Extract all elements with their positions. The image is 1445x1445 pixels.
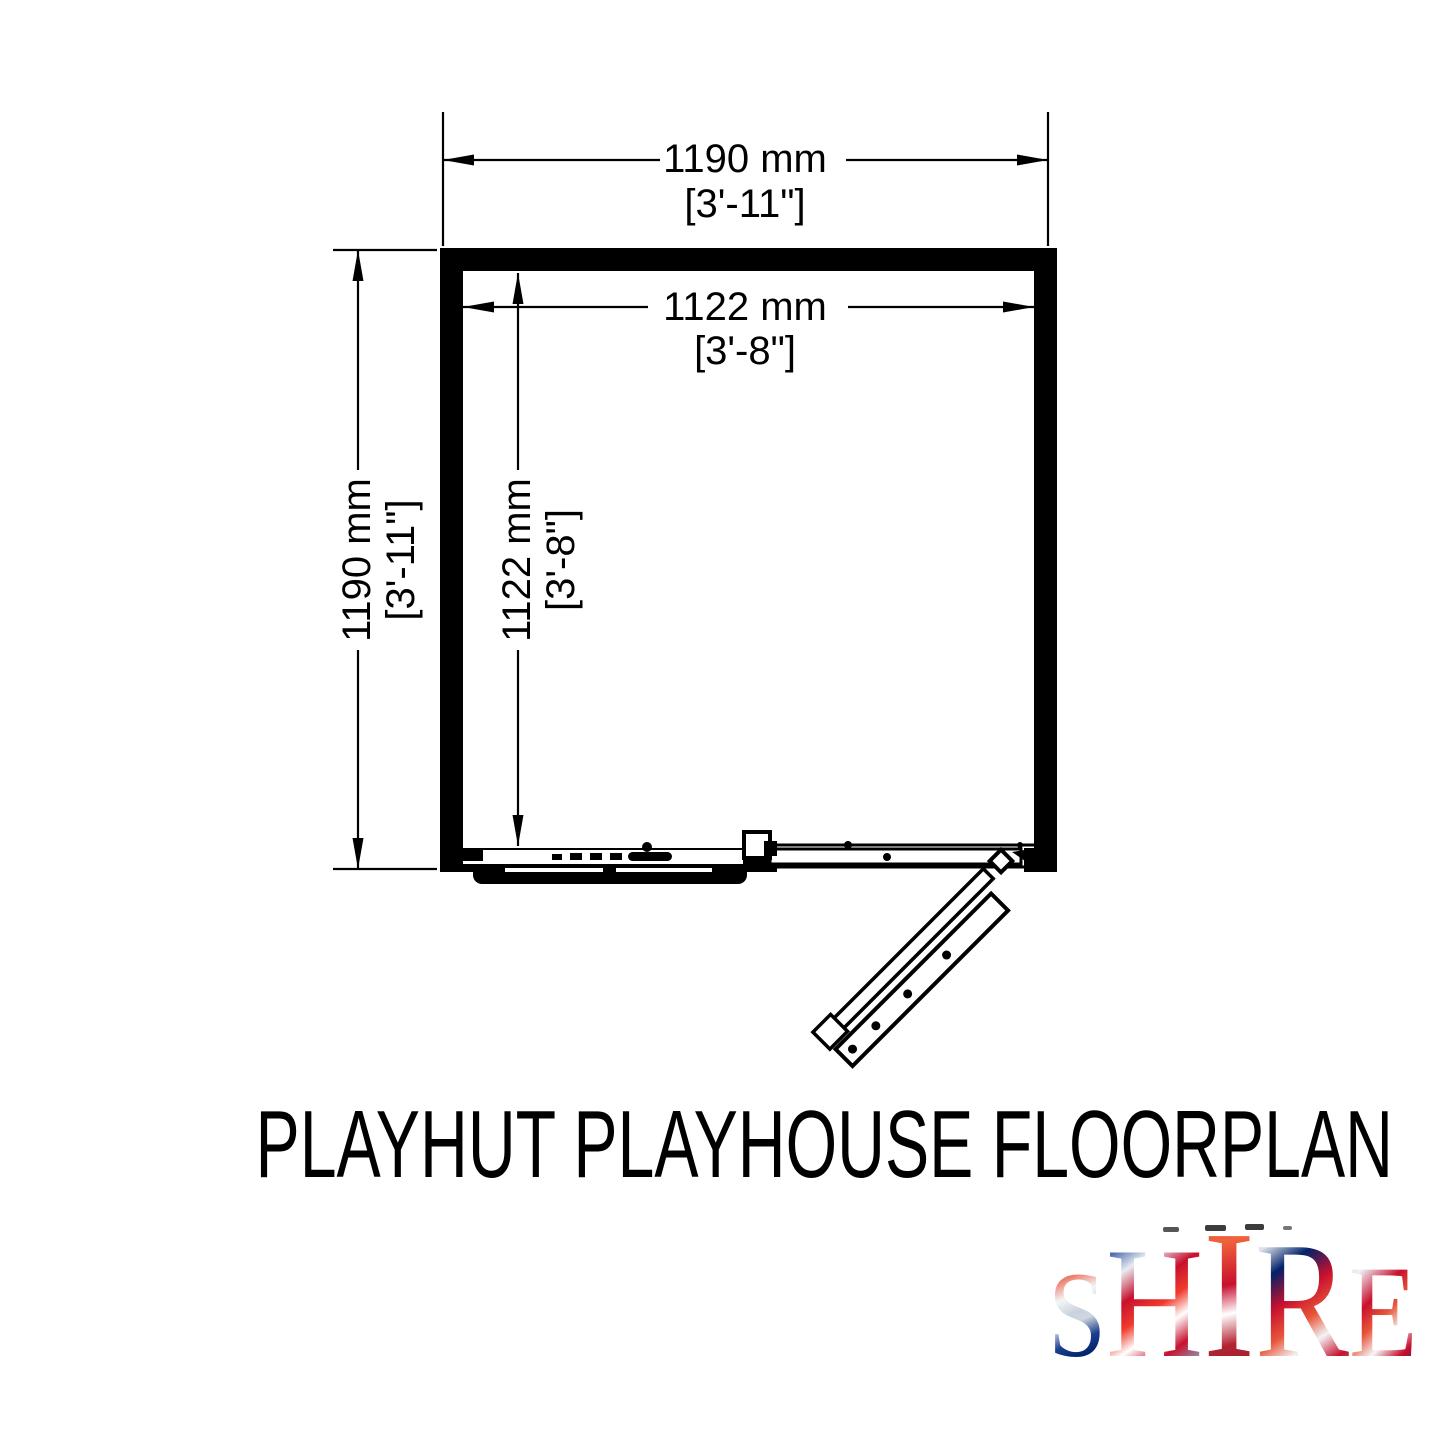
dim-inner-depth-imperial: [3'-8"] (539, 509, 583, 611)
logo-letter-s: S (1048, 1253, 1106, 1376)
dim-outer-depth-imperial: [3'-11"] (379, 499, 423, 620)
smudge-dash (1283, 1226, 1292, 1230)
floorplan-page: 1190 mm [3'-11"] 1122 mm [3'-8"] 1190 mm… (0, 0, 1445, 1445)
door-stop-nub (764, 841, 777, 856)
logo-letter-e: E (1349, 1246, 1418, 1378)
arrowhead (1017, 155, 1048, 166)
window-dash (590, 853, 602, 860)
window-slider (628, 852, 672, 861)
window-dash (610, 853, 622, 860)
arrowhead (353, 838, 364, 869)
dim-inner-depth-metric: 1122 mm (495, 478, 539, 642)
shire-logo: S H I R E BUILT AROUND OUR REPUTATION (1048, 1203, 1428, 1386)
arrowhead (463, 302, 494, 313)
arrowhead (513, 273, 524, 304)
window-latch-dot (642, 842, 652, 852)
sill-slot (616, 868, 712, 872)
arrowhead (353, 250, 364, 281)
threshold-dot (883, 853, 891, 861)
dim-inner-width-imperial: [3'-8"] (694, 329, 796, 373)
logo-tagline: BUILT AROUND OUR REPUTATION (1050, 1390, 1425, 1416)
door-panel (836, 894, 1009, 1067)
arrowhead (443, 155, 474, 166)
wall-left (440, 248, 463, 872)
logo-letter-h: H (1106, 1225, 1203, 1383)
sill-slot (505, 868, 603, 872)
threshold-bar (770, 849, 1021, 864)
window-gap (463, 861, 743, 864)
smudge-dash (1245, 1224, 1264, 1230)
hinge-dot (1017, 842, 1023, 848)
wall-right (1034, 248, 1057, 872)
page-title: PLAYHUT PLAYHOUSE FLOORPLAN (0, 1090, 1445, 1200)
door-leaf (813, 847, 1035, 1069)
wall-top (440, 248, 1057, 271)
smudge-dash (1205, 1225, 1226, 1231)
arrowhead (1003, 302, 1034, 313)
logo-letter-r: R (1255, 1217, 1349, 1383)
window-sill (473, 864, 747, 884)
arrowhead (513, 815, 524, 846)
dim-outer-depth-metric: 1190 mm (335, 478, 379, 642)
smudge-dash (1163, 1227, 1179, 1232)
window-dash (570, 853, 582, 860)
window-sash-mark (552, 854, 562, 860)
dim-inner-width-metric: 1122 mm (663, 285, 827, 329)
dim-outer-width-imperial: [3'-11"] (684, 182, 805, 226)
dim-outer-width-metric: 1190 mm (663, 137, 827, 181)
page-title-text: PLAYHUT PLAYHOUSE FLOORPLAN (256, 1090, 1393, 1200)
